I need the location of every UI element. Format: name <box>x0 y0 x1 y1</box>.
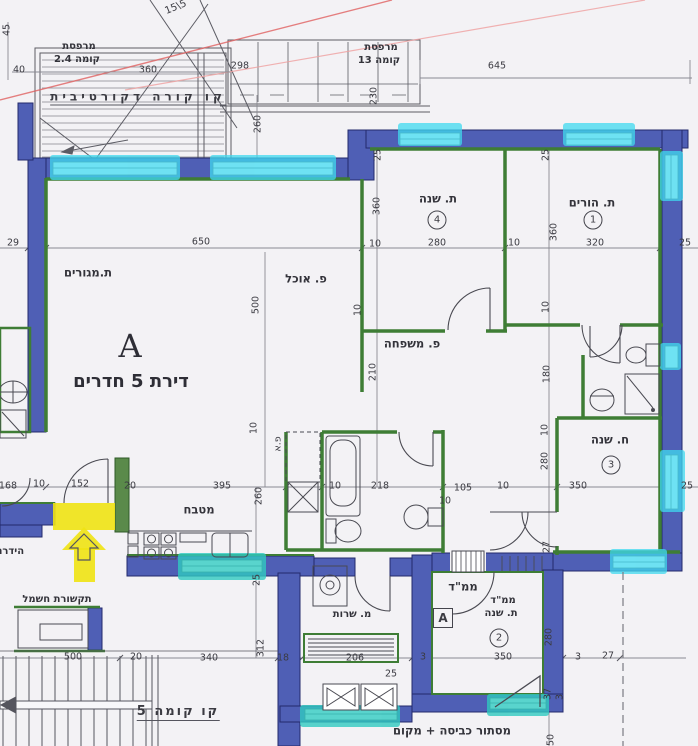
dimension-label: 280 <box>540 452 550 470</box>
dimension-label: 29 <box>7 238 19 248</box>
dimension-label: 280 <box>428 238 446 248</box>
dimension-label: 360 <box>139 65 157 75</box>
dimension-label: 20 <box>130 652 142 662</box>
room-label: ת. שנה <box>419 193 457 205</box>
dimension-label: 10 <box>33 479 45 489</box>
room-number-badge: 2 <box>490 629 509 648</box>
dimension-label: 298 <box>231 61 249 71</box>
dimension-label: פ.א <box>273 436 283 451</box>
dimension-label: 168 <box>0 481 17 491</box>
dimension-label: 360 <box>549 223 559 241</box>
dimension-label: 37 <box>543 688 553 700</box>
room-label: ת.מגורים <box>64 267 112 279</box>
dimension-label: 3 <box>420 652 426 662</box>
room-label: מ. שרות <box>333 610 371 620</box>
dimension-label: 650 <box>192 237 210 247</box>
room-label: הידרנ <box>0 547 24 557</box>
dimension-label: 20 <box>124 481 136 491</box>
dimension-label: 18 <box>277 653 289 663</box>
dimension-label: 218 <box>371 481 389 491</box>
dimension-label: 10 <box>249 422 259 434</box>
room-label: קומה 2.4 <box>54 55 100 65</box>
dimension-label: 280 <box>544 628 554 646</box>
room-label: מטבח <box>183 504 214 516</box>
dimension-label: 500 <box>251 296 261 314</box>
dimension-label: 10 <box>541 301 551 313</box>
dimension-label: 645 <box>488 61 506 71</box>
dimension-label: 360 <box>372 197 382 215</box>
apartment-type-label: דירת 5 חדרים <box>73 373 189 391</box>
annotation-label: קו קורה דקורטיבית <box>50 91 226 106</box>
dimension-label: 15\5 <box>164 0 189 17</box>
dimension-label: 10 <box>508 238 520 248</box>
room-label: ת. הורים <box>569 197 615 209</box>
dimension-label: 395 <box>213 481 231 491</box>
dimension-label: 10 <box>329 481 341 491</box>
dimension-label: 260 <box>253 115 263 133</box>
dimension-label: 210 <box>368 363 378 381</box>
dimension-label: 25 <box>373 149 383 161</box>
room-number-badge: 3 <box>602 456 621 475</box>
dimension-label: 40 <box>13 65 25 75</box>
room-label: מסתור כביסה + מקום <box>393 725 511 737</box>
room-label: קומה 13 <box>358 56 400 66</box>
dimension-label: 10 <box>439 496 451 506</box>
dimension-label: 260 <box>254 487 264 505</box>
dimension-label: 50 <box>546 734 556 746</box>
shelter-letter-badge: A <box>433 608 453 628</box>
room-label: מרפסת <box>62 42 95 52</box>
room-label: ממ"ד <box>448 581 477 593</box>
dimension-label: 10 <box>369 239 381 249</box>
room-label: פ. אוכל <box>285 273 327 285</box>
room-label: תקשורת חשמל <box>22 595 91 605</box>
dimension-label: 320 <box>586 238 604 248</box>
dimension-label: 10 <box>497 481 509 491</box>
dimension-label: 312 <box>256 639 266 657</box>
dimension-label: 27 <box>542 541 552 553</box>
dimension-label: 350 <box>569 481 587 491</box>
apartment-letter: A <box>118 330 141 362</box>
dimension-label: 27 <box>602 651 614 661</box>
dimension-label: 25 <box>681 481 693 491</box>
room-label: פ. משפחה <box>384 338 440 350</box>
dimension-label: 25 <box>252 574 262 586</box>
room-label: ממ"ד <box>490 596 516 606</box>
dimension-label: 10 <box>540 424 550 436</box>
dimension-label: 45 <box>2 24 12 36</box>
dimension-label: 230 <box>369 87 379 105</box>
dimension-label: 25 <box>679 238 691 248</box>
dimension-label: 152 <box>71 479 89 489</box>
dimension-label: 10 <box>353 304 363 316</box>
room-number-badge: 4 <box>428 211 447 230</box>
dimension-label: 340 <box>200 653 218 663</box>
dimension-label: 25 <box>541 149 551 161</box>
floor-plan: 15\54540מרפסתקומה 2.4360298מרפסתקומה 136… <box>0 0 698 746</box>
dimension-label: 3 <box>555 694 565 700</box>
dimension-label: 206 <box>346 653 364 663</box>
annotation-label: קו קומה 5 <box>137 705 220 721</box>
room-label: מרפסת <box>364 43 397 53</box>
dimension-label: 105 <box>454 483 472 493</box>
dimension-label: 25 <box>385 669 397 679</box>
dimension-label: 180 <box>542 365 552 383</box>
room-number-badge: 1 <box>584 211 603 230</box>
room-label: ח. שנה <box>591 434 629 446</box>
dimension-label: 3 <box>575 652 581 662</box>
dimension-label: 500 <box>64 652 82 662</box>
dimension-label: 350 <box>494 652 512 662</box>
room-label: ת. שנה <box>484 609 517 619</box>
